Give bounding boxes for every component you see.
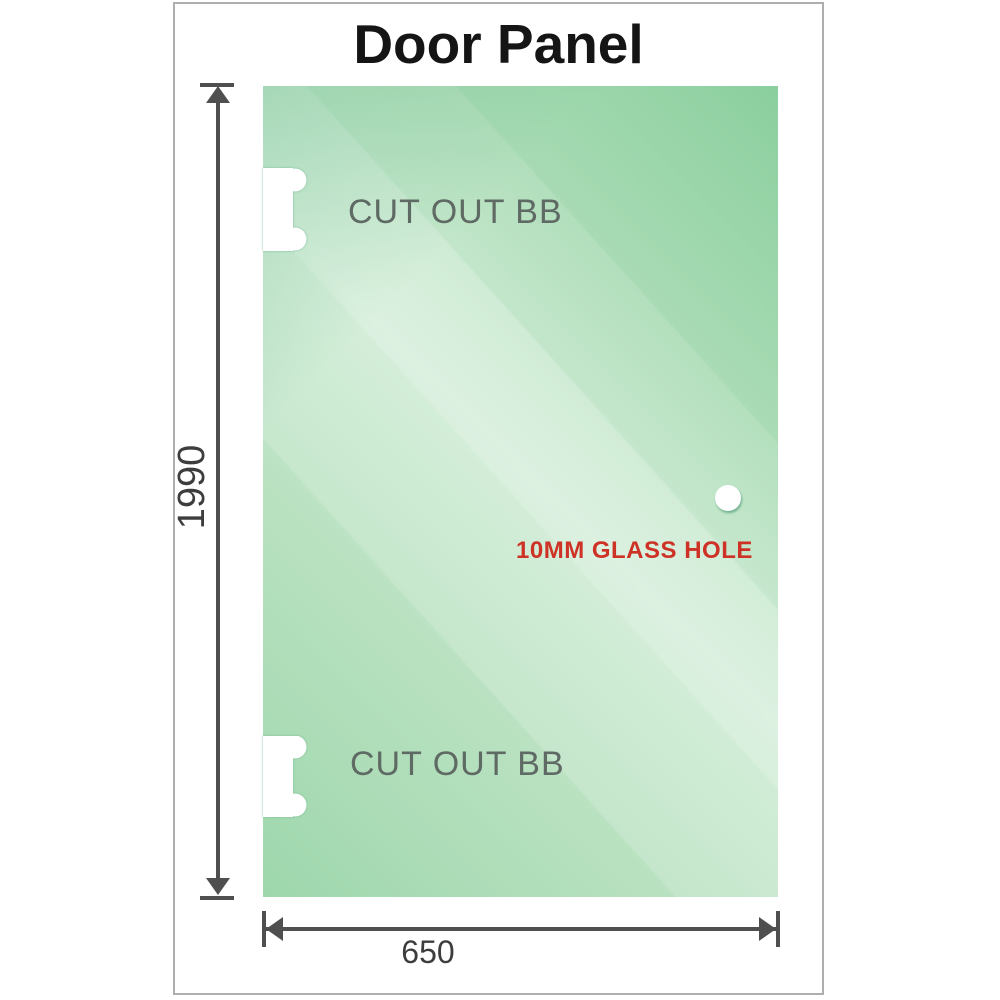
- dimension-line-horizontal: [266, 927, 776, 931]
- height-dimension-label: 1990: [170, 407, 214, 567]
- arrowhead-right-icon: [759, 917, 776, 941]
- glass-hole-label: 10MM GLASS HOLE: [516, 537, 753, 565]
- hinge-cutout-bottom-icon: [263, 736, 309, 820]
- arrowhead-down-icon: [206, 878, 230, 895]
- door-panel-diagram: Door Panel CUT OUT BB CUT OUT BB 10MM GL…: [0, 0, 1000, 1000]
- arrowhead-left-icon: [266, 917, 283, 941]
- cutout-label-top: CUT OUT BB: [348, 193, 563, 232]
- dimension-line-vertical: [216, 100, 220, 880]
- extension-cap-right: [776, 911, 780, 947]
- hinge-cutout-top-icon: [263, 168, 309, 252]
- arrowhead-up-icon: [206, 86, 230, 103]
- extension-cap-bottom: [200, 896, 234, 900]
- page-title: Door Panel: [173, 12, 824, 76]
- glass-hole: [715, 485, 741, 511]
- cutout-label-bottom: CUT OUT BB: [350, 745, 565, 784]
- width-dimension-label: 650: [368, 934, 488, 970]
